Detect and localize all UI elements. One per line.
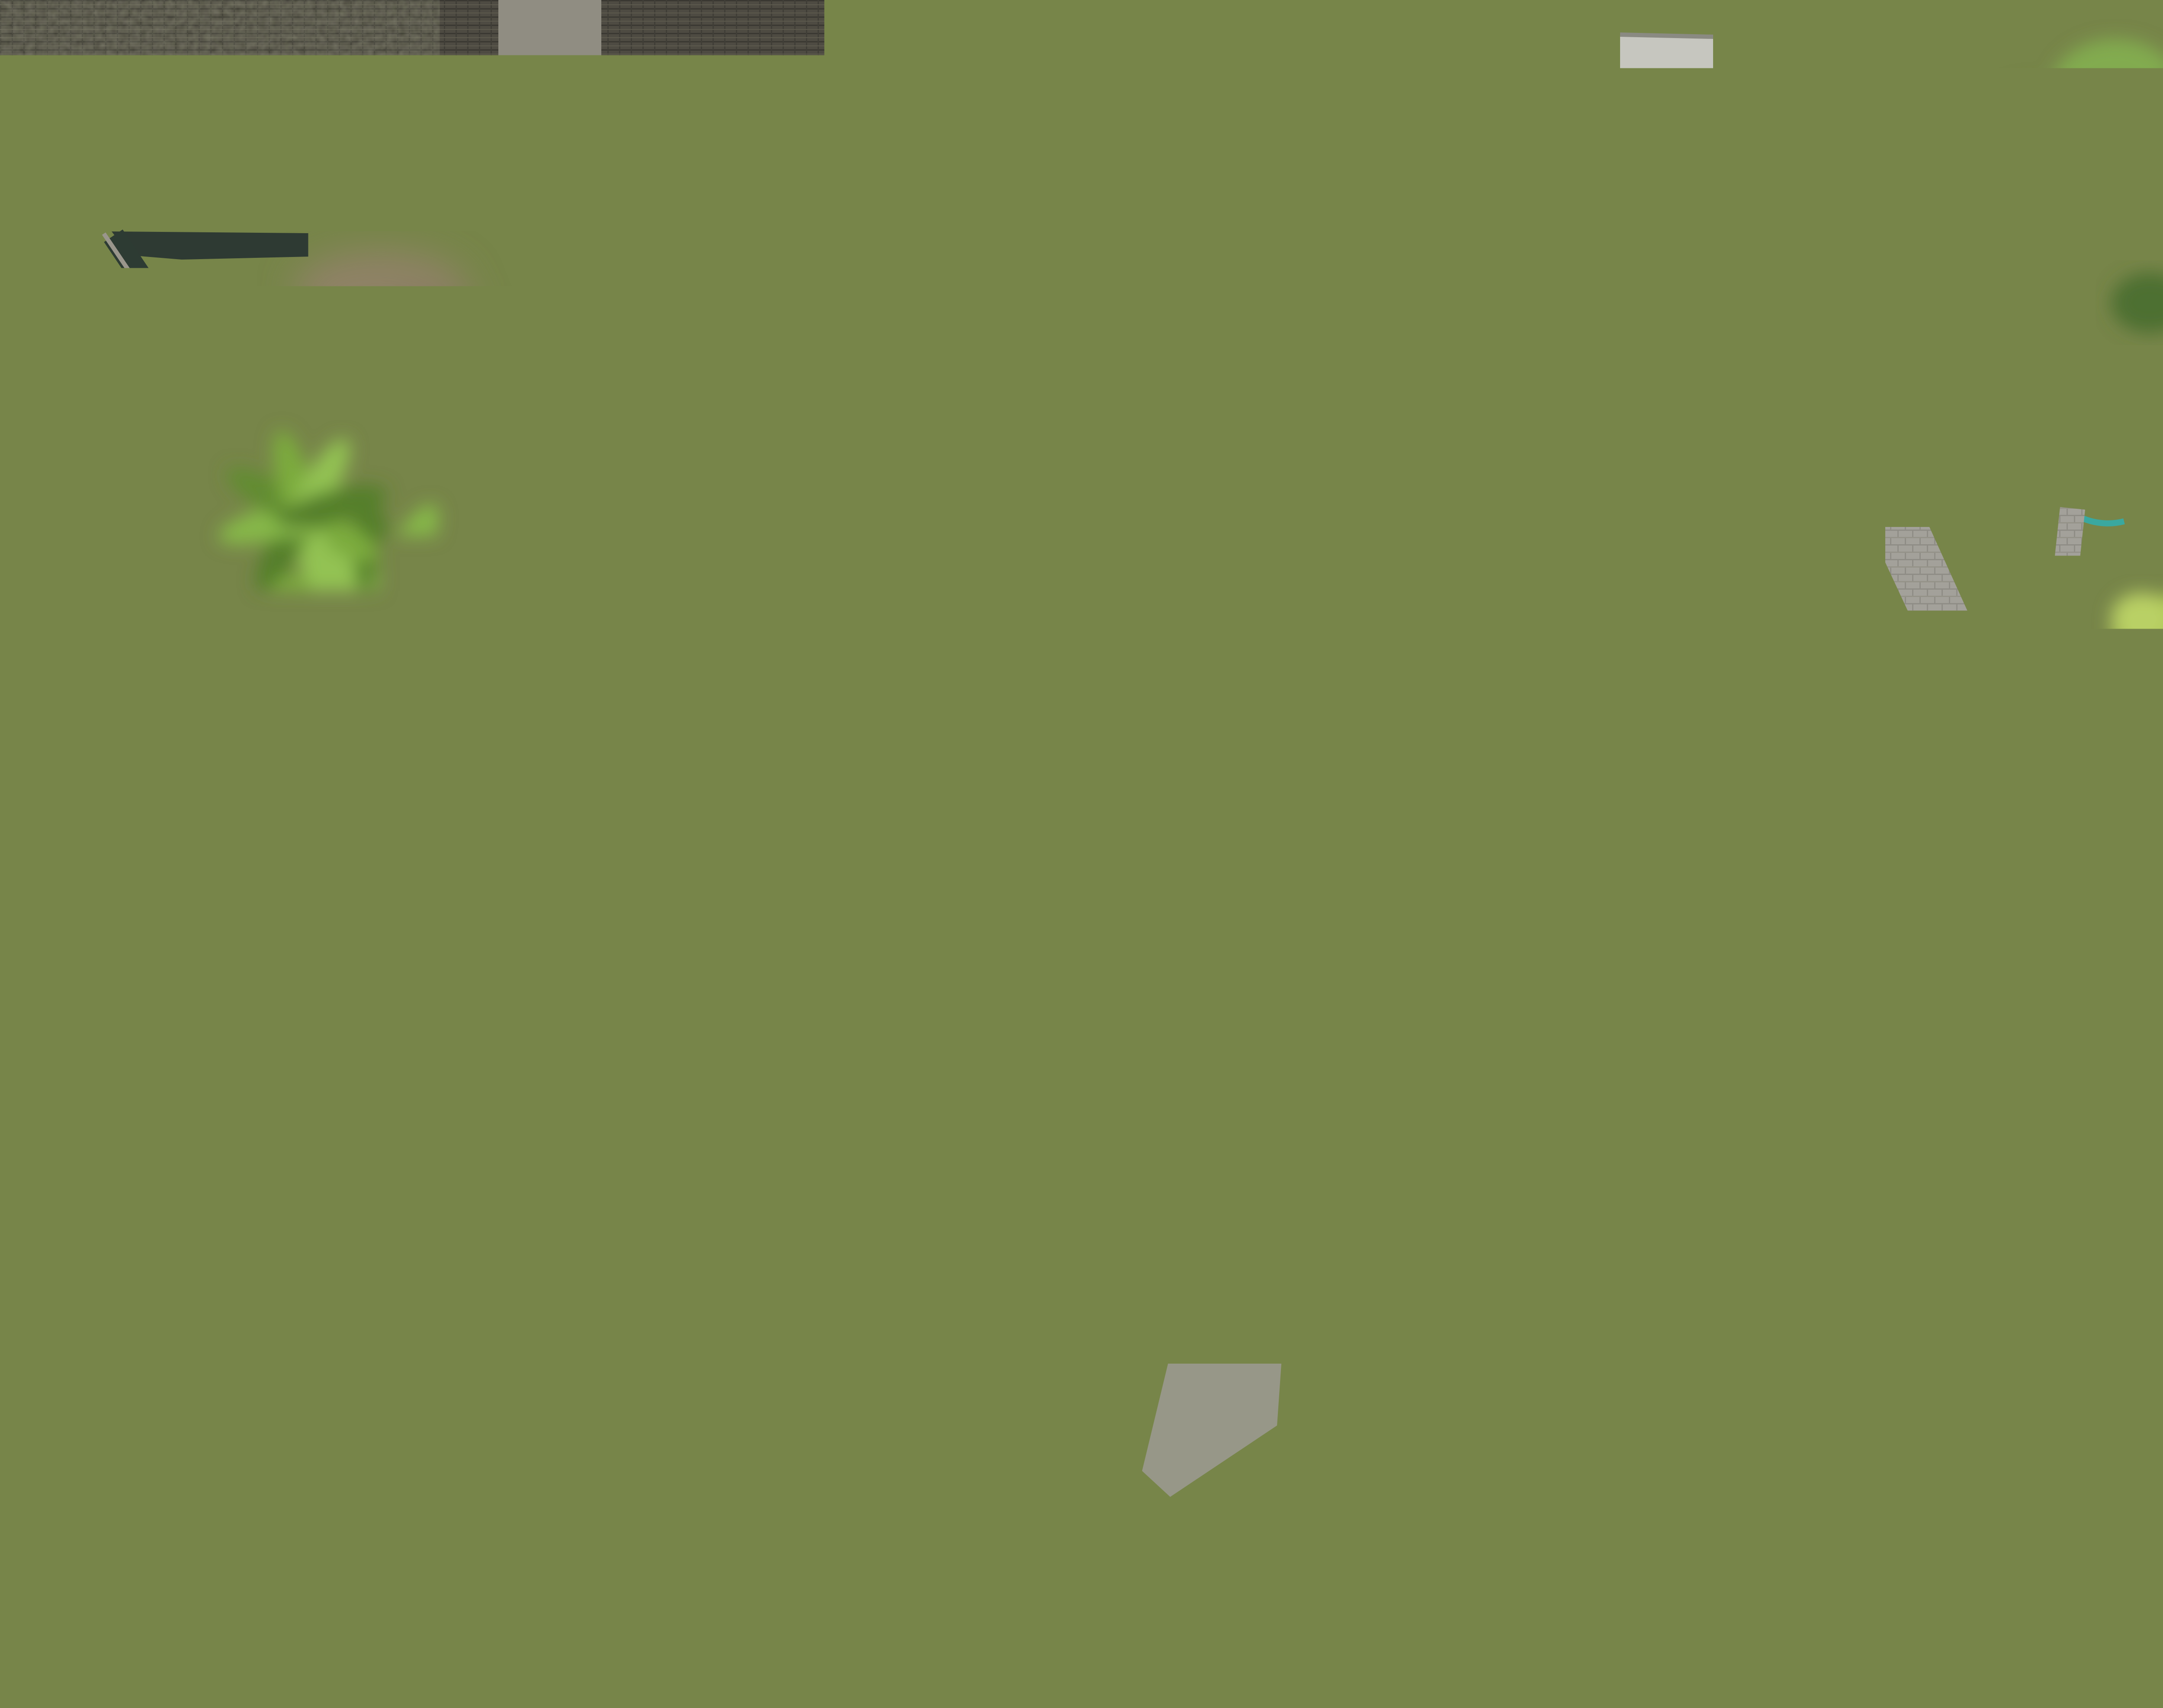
svg-text:Boundary lines are indicative: Boundary lines are indicative only (28, 1648, 641, 1694)
